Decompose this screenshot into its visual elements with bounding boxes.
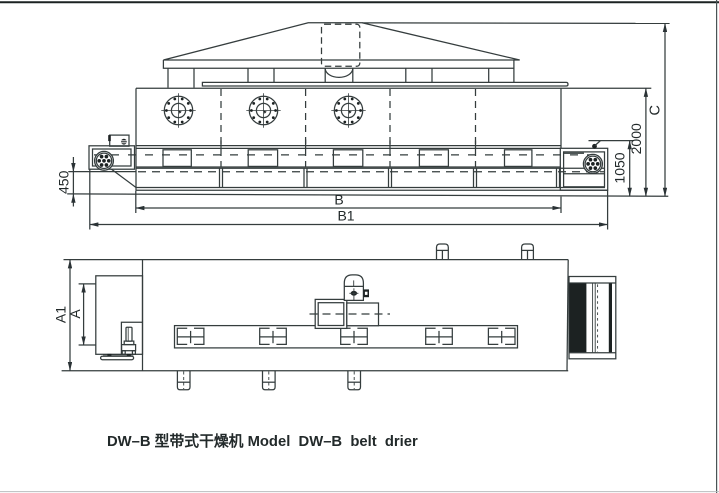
svg-text:B1: B1: [337, 208, 354, 224]
svg-text:1050: 1050: [612, 152, 628, 183]
svg-text:DW–B 型带式干燥机 Model DW–B belt: DW–B 型带式干燥机 Model DW–B belt drier: [107, 432, 418, 450]
svg-text:C: C: [647, 105, 663, 115]
svg-text:2000: 2000: [628, 123, 644, 154]
svg-text:A: A: [67, 309, 83, 319]
svg-text:B: B: [334, 192, 343, 208]
svg-text:450: 450: [56, 170, 72, 194]
